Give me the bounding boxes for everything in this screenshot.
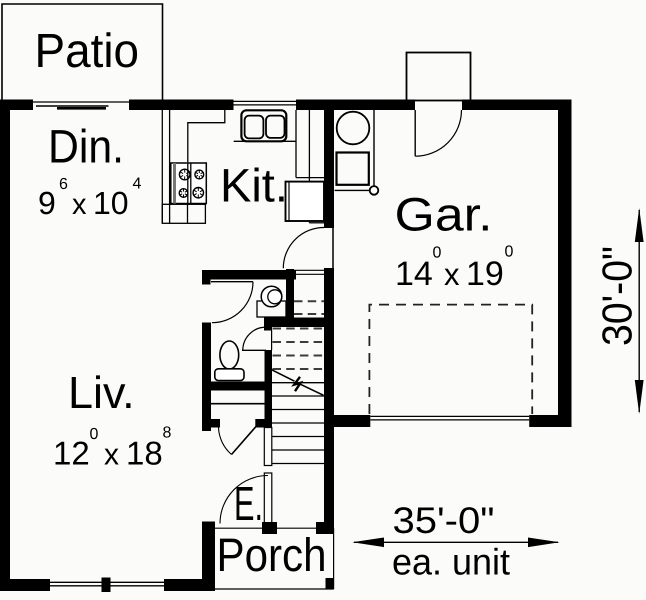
svg-text:0: 0	[90, 426, 99, 443]
svg-text:6: 6	[59, 176, 68, 193]
svg-text:10: 10	[93, 185, 129, 221]
svg-text:9: 9	[38, 185, 56, 221]
svg-text:x: x	[444, 257, 460, 292]
svg-text:Liv.: Liv.	[68, 367, 135, 418]
svg-text:18: 18	[126, 435, 163, 472]
svg-text:x: x	[104, 439, 119, 472]
svg-text:4: 4	[133, 176, 142, 193]
svg-text:8: 8	[163, 425, 172, 442]
svg-text:x: x	[72, 189, 87, 221]
svg-text:Din.: Din.	[48, 120, 124, 173]
svg-text:Patio: Patio	[35, 25, 140, 78]
svg-text:14: 14	[395, 255, 433, 293]
svg-text:12: 12	[53, 435, 90, 472]
svg-text:E.: E.	[234, 478, 263, 531]
svg-text:Gar.: Gar.	[395, 188, 493, 241]
svg-text:19: 19	[466, 255, 504, 293]
svg-text:0: 0	[433, 245, 442, 262]
svg-text:0: 0	[505, 244, 514, 261]
svg-text:30'-0": 30'-0"	[594, 246, 641, 346]
svg-text:35'-0": 35'-0"	[393, 500, 495, 541]
svg-text:Kit.: Kit.	[220, 159, 288, 212]
svg-text:Porch: Porch	[217, 528, 327, 581]
svg-text:ea. unit: ea. unit	[392, 542, 511, 583]
